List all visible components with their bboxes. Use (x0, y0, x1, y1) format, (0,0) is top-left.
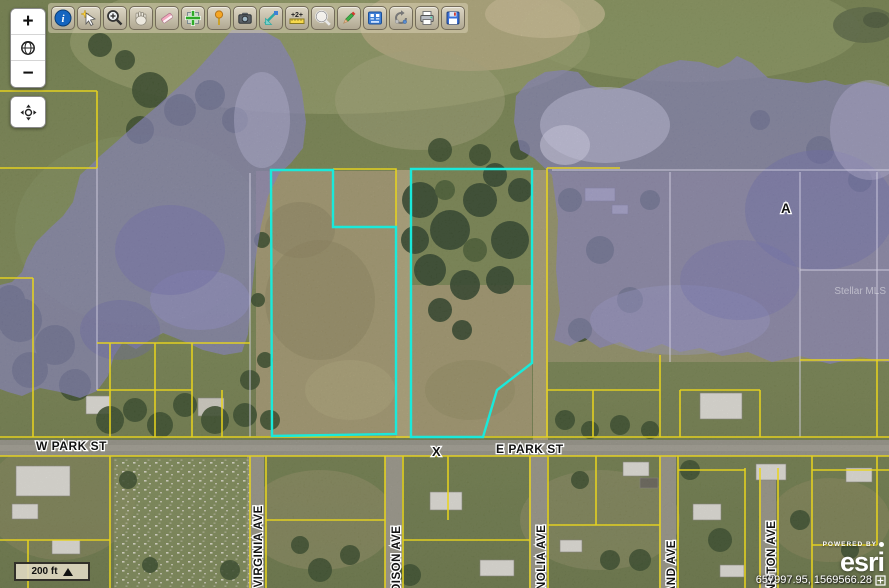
full-extent-button[interactable] (11, 35, 45, 61)
scale-bar-label: 200 ft (31, 566, 57, 577)
pushpin-tool-icon[interactable] (207, 6, 231, 30)
scalebar-arrow-icon (63, 568, 73, 576)
street-label-virginia: N VIRGINIA AVE (253, 505, 265, 588)
street-label-e-park: E PARK ST (496, 442, 564, 456)
select-features-icon[interactable] (77, 6, 101, 30)
esri-attribution: POWERED BY esri (823, 542, 884, 576)
snapshot-tool-icon[interactable] (233, 6, 257, 30)
crosshair-icon (20, 104, 37, 121)
zoom-out-button[interactable]: − (11, 61, 45, 87)
street-label-and: AND AVE (666, 540, 678, 588)
eraser-tool-icon[interactable] (155, 6, 179, 30)
gis-map-viewer: W PARK ST X E PARK ST A N VIRGINIA AVE D… (0, 0, 889, 588)
zoom-in-button[interactable]: + (11, 9, 45, 35)
svg-text:+2+: +2+ (291, 12, 303, 19)
add-to-map-icon[interactable] (181, 6, 205, 30)
photo-grain-light (0, 0, 889, 588)
sketch-tools-icon[interactable] (259, 6, 283, 30)
street-label-w-park: W PARK ST (36, 439, 107, 453)
refresh-tool-icon[interactable] (389, 6, 413, 30)
esri-logo: esri (823, 549, 884, 576)
print-tool-icon[interactable] (415, 6, 439, 30)
measure-tool-icon[interactable]: +2+ (285, 6, 309, 30)
map-toolbar: i +2+ (48, 3, 468, 33)
pan-crosshair-button[interactable] (11, 97, 45, 127)
draw-tool-icon[interactable] (337, 6, 361, 30)
map-canvas[interactable]: W PARK ST X E PARK ST A N VIRGINIA AVE D… (0, 0, 889, 588)
coordinate-values: 657997.95, 1569566.28 (756, 574, 872, 586)
watermark: Stellar MLS (834, 286, 886, 297)
pan-control (10, 96, 46, 128)
identify-icon[interactable]: i (51, 6, 75, 30)
attribute-table-icon[interactable] (363, 6, 387, 30)
find-tool-icon[interactable] (311, 6, 335, 30)
save-tool-icon[interactable] (441, 6, 465, 30)
pan-tool-icon[interactable] (129, 6, 153, 30)
street-label-madison: DISON AVE (391, 526, 403, 588)
street-label-magnolia: NOLIA AVE (536, 525, 548, 588)
scale-bar: 200 ft (14, 562, 90, 581)
x-marker-label: X (432, 444, 441, 459)
coordinate-crosshair-icon (875, 575, 886, 586)
zoom-control: + − (10, 8, 46, 88)
globe-icon (20, 40, 36, 56)
zoom-in-tool-icon[interactable] (103, 6, 127, 30)
flood-zone-a-label: A (781, 201, 791, 216)
coordinate-readout: 657997.95, 1569566.28 (756, 574, 886, 586)
